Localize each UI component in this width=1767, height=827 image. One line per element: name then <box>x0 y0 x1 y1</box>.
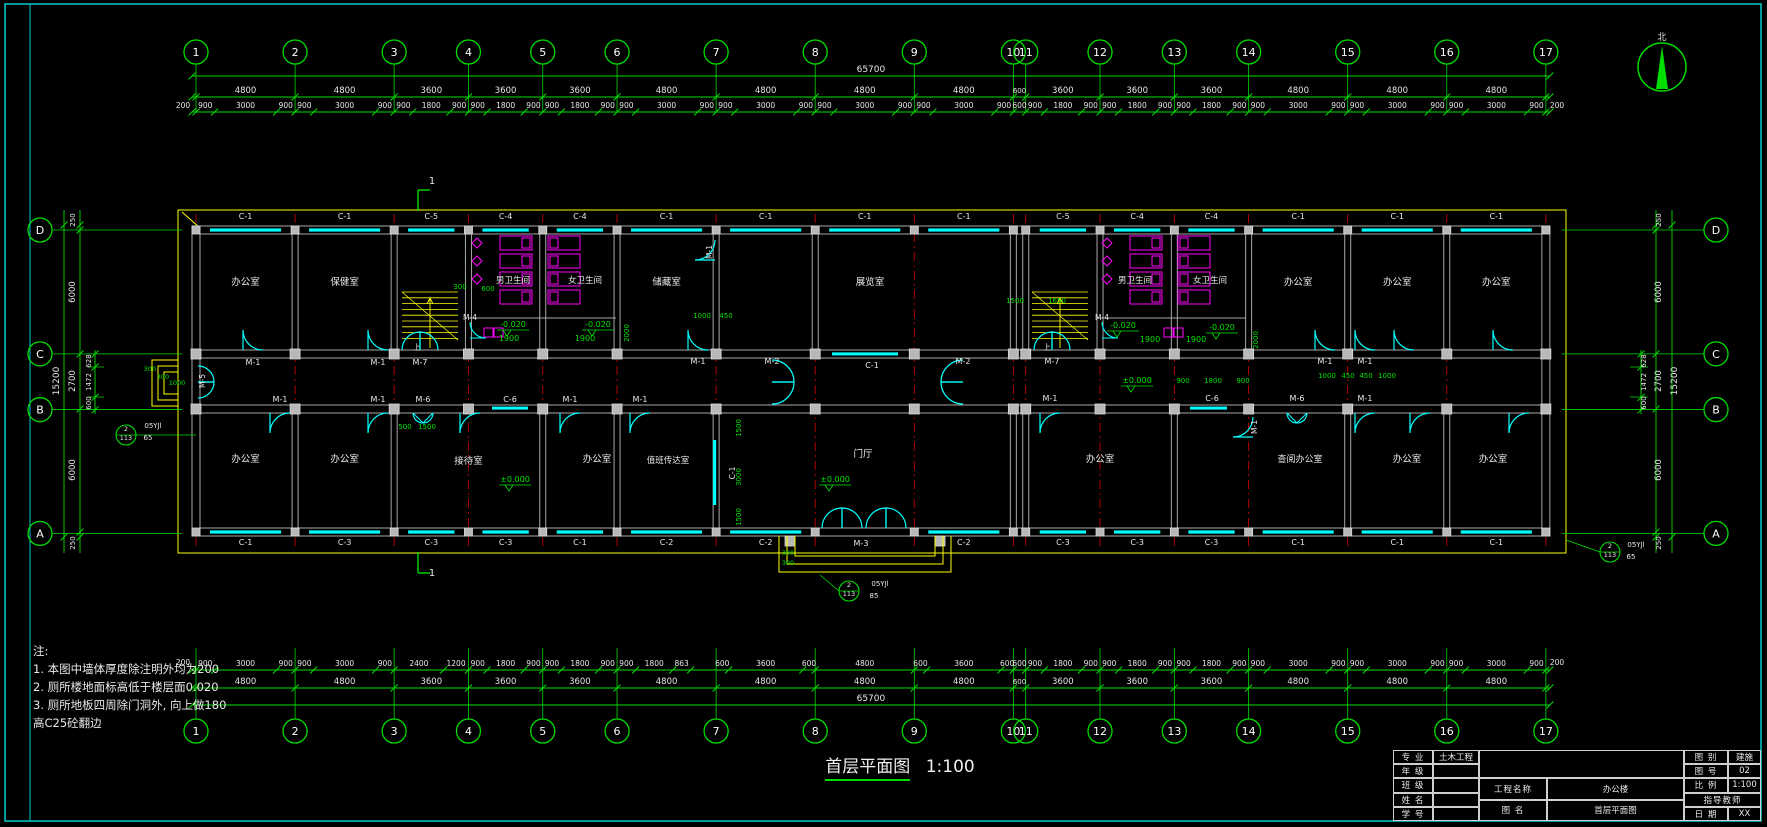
axis-bubble-label: C <box>1712 348 1720 361</box>
window-glazing <box>492 407 528 410</box>
dim-detail: 900 <box>526 101 541 110</box>
window-label: C-2 <box>759 538 773 547</box>
window-label: C-1 <box>239 212 253 221</box>
window-label: C-3 <box>1130 538 1144 547</box>
room-label: 男卫生间 <box>496 275 530 286</box>
partition-wall <box>1345 413 1351 528</box>
column <box>1021 404 1031 414</box>
axis-bubble-label: 8 <box>812 725 819 738</box>
opening-label: M-1 <box>633 395 648 404</box>
column <box>711 349 721 359</box>
partition-wall <box>1444 234 1450 350</box>
dim-detail: 1800 <box>1128 659 1147 668</box>
titleblock-label: 图 别 <box>1684 750 1728 764</box>
plan-outline <box>178 210 1566 553</box>
door-arc <box>1287 413 1297 423</box>
exterior-wall-east <box>1542 226 1550 536</box>
titleblock-value: 1:100 <box>1728 778 1761 792</box>
north-compass-needle <box>1656 46 1668 89</box>
opening-label: 65 <box>144 434 153 442</box>
axis-bubble-label: 14 <box>1242 46 1256 59</box>
dim-detail: 900 <box>526 659 541 668</box>
axis-bubble-label: 6 <box>614 725 621 738</box>
dim-detail: 3000 <box>236 101 255 110</box>
opening-label: 05YJl <box>871 580 888 588</box>
partition-wall <box>1023 234 1029 350</box>
column <box>192 226 200 234</box>
column <box>1170 528 1178 536</box>
dim-detail: 900 <box>1449 101 1464 110</box>
inner-dim: 450 <box>1341 372 1354 380</box>
column <box>538 349 548 359</box>
opening-label: 113 <box>1604 551 1616 559</box>
dim-detail: 900 <box>1529 659 1544 668</box>
dim-detail: 900 <box>718 101 733 110</box>
dim-total: 15200 <box>52 366 62 395</box>
axis-bubble-label: 17 <box>1539 46 1553 59</box>
dim-span: 4800 <box>1287 677 1309 687</box>
inner-dim: 450 <box>1359 372 1372 380</box>
window-label: C-1 <box>1390 212 1404 221</box>
dim-detail: 1800 <box>645 659 664 668</box>
opening-label: M-6 <box>1290 394 1305 403</box>
partition-wall <box>1345 234 1351 350</box>
column <box>464 226 472 234</box>
axis-bubble-label: 6 <box>614 46 621 59</box>
dim-detail: 3000 <box>954 101 973 110</box>
door-arc <box>1040 413 1060 433</box>
dim-detail: 600 <box>1012 101 1027 110</box>
column <box>909 404 919 414</box>
column <box>1443 226 1451 234</box>
dim-detail: 3000 <box>335 101 354 110</box>
window-label: C-4 <box>1205 212 1219 221</box>
door-arc <box>1394 330 1414 350</box>
dim-detail: 900 <box>378 659 393 668</box>
dim-end: 250 <box>1655 213 1663 226</box>
column <box>1009 226 1017 234</box>
column <box>1541 349 1551 359</box>
window-glazing <box>1263 228 1334 231</box>
partition-wall <box>391 234 397 350</box>
dim-span: 4800 <box>1287 86 1309 96</box>
dim-span: 4800 <box>953 86 975 96</box>
callout-leader <box>1566 540 1600 552</box>
opening-label: 上 <box>1043 343 1051 352</box>
dim-span: 6000 <box>68 281 78 303</box>
dim-detail: 900 <box>279 659 294 668</box>
room-label: 办公室 <box>231 453 260 465</box>
dim-detail: 900 <box>799 101 814 110</box>
dim-span: 3600 <box>569 677 591 687</box>
column <box>1008 349 1018 359</box>
dim-detail: 900 <box>1158 659 1173 668</box>
door-arc <box>243 330 263 350</box>
column <box>1021 349 1031 359</box>
titleblock-value <box>1433 793 1479 807</box>
column <box>1245 226 1253 234</box>
window-glazing <box>1362 228 1433 231</box>
door-arc <box>1509 413 1529 433</box>
titleblock-blank <box>1479 750 1684 778</box>
titleblock-label: 班 级 <box>1393 778 1433 792</box>
wc <box>1152 238 1160 248</box>
door-arc <box>1355 413 1375 433</box>
axis-bubble-label: 9 <box>911 46 918 59</box>
inner-dim: 2000 <box>623 324 631 342</box>
dim-detail: 900 <box>1232 659 1247 668</box>
window-glazing <box>1188 530 1234 533</box>
dim-detail: 3000 <box>1289 101 1308 110</box>
drawing-title: 首层平面图 1:100 <box>770 752 1030 777</box>
room-label: 查阅办公室 <box>1277 453 1322 465</box>
titleblock-value: XX <box>1728 807 1761 821</box>
column <box>712 528 720 536</box>
dim-detail: 1472 <box>85 373 93 391</box>
column <box>1343 404 1353 414</box>
dim-detail: 900 <box>545 101 560 110</box>
urinal <box>472 238 482 248</box>
dim-detail: 1800 <box>1202 101 1221 110</box>
opening-label: M-1 <box>371 358 386 367</box>
column <box>1095 349 1105 359</box>
level-symbol-triangle <box>1127 386 1135 392</box>
opening-label: M-4 <box>463 313 477 322</box>
room-label: 保健室 <box>330 276 359 288</box>
dim-detail: 900 <box>1102 101 1117 110</box>
dim-detail: 3000 <box>236 659 255 668</box>
opening-label: 上 <box>413 343 421 352</box>
window-label: C-2 <box>660 538 674 547</box>
inner-dim: ±0.000 <box>820 475 850 484</box>
opening-label: M-1 <box>371 395 386 404</box>
column <box>539 528 547 536</box>
partition-wall <box>1023 413 1029 528</box>
dim-detail: 3000 <box>756 101 775 110</box>
column <box>463 349 473 359</box>
inner-dim: 900 <box>1176 377 1189 385</box>
column <box>613 226 621 234</box>
window-glazing <box>631 228 702 231</box>
window-label: C-1 <box>1291 538 1305 547</box>
dim-detail: 900 <box>1176 659 1191 668</box>
room-label: 办公室 <box>1383 276 1412 288</box>
dim-detail: 3000 <box>1388 101 1407 110</box>
column <box>191 404 201 414</box>
window-glazing <box>928 228 999 231</box>
opening-label: M-1 <box>246 358 261 367</box>
inner-dim: 1500 <box>735 419 743 437</box>
window-label: C-3 <box>1205 538 1219 547</box>
drawing-title-text: 首层平面图 <box>825 757 910 781</box>
wc <box>1180 292 1188 302</box>
titleblock-label: 学 号 <box>1393 807 1433 821</box>
dim-detail: 600 <box>802 659 817 668</box>
dim-detail: 900 <box>1158 101 1173 110</box>
dim-span: 3600 <box>420 677 442 687</box>
titleblock-label: 比 例 <box>1684 778 1728 792</box>
dim-detail: 3000 <box>657 101 676 110</box>
dim-detail: 900 <box>1102 659 1117 668</box>
window-label: C-1 <box>660 212 674 221</box>
partition-wall <box>1010 234 1016 350</box>
dim-detail: 2400 <box>409 659 428 668</box>
inner-dim: 3000 <box>735 468 743 486</box>
column <box>1344 226 1352 234</box>
window-glazing <box>557 530 603 533</box>
dim-span: 3600 <box>1052 677 1074 687</box>
room-label: 办公室 <box>231 276 260 288</box>
column <box>910 226 918 234</box>
window-glazing <box>557 228 603 231</box>
axis-bubble-label: D <box>36 224 44 237</box>
column <box>1542 528 1550 536</box>
window-glazing <box>730 530 801 533</box>
titleblock-label: 图 号 <box>1684 764 1728 778</box>
dim-detail: 1800 <box>1128 101 1147 110</box>
dim-span: 4800 <box>235 86 257 96</box>
opening-label: C-6 <box>1205 394 1219 403</box>
dim-span: 4800 <box>854 677 876 687</box>
inner-dim: -0.020 <box>585 320 611 329</box>
dim-detail: 3600 <box>756 659 775 668</box>
window-label: C-1 <box>957 212 971 221</box>
axis-bubble-label: 5 <box>539 46 546 59</box>
partition-wall <box>614 413 620 528</box>
door-arc <box>688 330 708 350</box>
opening-label: M-2 <box>956 357 971 366</box>
dim-detail: 3000 <box>1388 659 1407 668</box>
dim-detail: 900 <box>916 101 931 110</box>
dim-detail: 900 <box>898 101 913 110</box>
window-glazing <box>713 440 716 505</box>
dim-detail: 3000 <box>335 659 354 668</box>
window-label: C-4 <box>499 212 513 221</box>
opening-label: M-7 <box>413 358 428 367</box>
dim-detail: 900 <box>297 101 312 110</box>
window-glazing <box>1190 407 1227 410</box>
window-label: C-1 <box>573 538 587 547</box>
floor-plan-canvas: 北C-1C-1C-5C-4C-4C-1C-1C-1C-1C-5C-4C-4C-1… <box>0 0 1767 827</box>
wc <box>522 238 530 248</box>
axis-bubble-label: 3 <box>391 46 398 59</box>
opening-label: M-1 <box>1358 357 1373 366</box>
column <box>1344 528 1352 536</box>
dim-end: 250 <box>1655 536 1663 549</box>
column <box>1542 226 1550 234</box>
window-label: C-3 <box>499 538 513 547</box>
dim-end: 200 <box>176 101 191 110</box>
room-label: 办公室 <box>1482 276 1511 288</box>
column <box>390 226 398 234</box>
room-label: 女卫生间 <box>1193 275 1227 286</box>
door-arc <box>423 413 433 423</box>
general-notes: 注: 1. 本图中墙体厚度除注明外均为200 2. 厕所楼地面标高低于楼层面0.… <box>33 642 226 732</box>
inner-dim: 1000 <box>693 312 711 320</box>
dim-detail: 1800 <box>496 101 515 110</box>
column <box>1245 528 1253 536</box>
window-glazing <box>1461 530 1532 533</box>
wc <box>550 238 558 248</box>
window-glazing <box>1040 530 1086 533</box>
dim-span: 3600 <box>1201 86 1223 96</box>
axis-bubble-label: 15 <box>1341 46 1355 59</box>
dim-detail: 600 <box>1012 659 1027 668</box>
opening-label: M-1 <box>1250 420 1259 434</box>
column <box>539 226 547 234</box>
dim-detail: 900 <box>471 659 486 668</box>
dim-detail: 4800 <box>855 659 874 668</box>
dim-detail: 600 <box>913 659 928 668</box>
dim-span: 4800 <box>953 677 975 687</box>
inner-dim: 1000 <box>1318 372 1336 380</box>
dim-end: 200 <box>1550 101 1565 110</box>
door-arc <box>1315 330 1335 350</box>
room-label: 女卫生间 <box>568 275 602 286</box>
axis-bubble-label: 2 <box>292 46 299 59</box>
dim-detail: 900 <box>1028 659 1043 668</box>
titleblock-label: 姓 名 <box>1393 793 1433 807</box>
window-label: C-3 <box>338 538 352 547</box>
dim-span: 3600 <box>569 86 591 96</box>
dim-detail: 900 <box>619 101 634 110</box>
window-label: C-1 <box>1291 212 1305 221</box>
inner-dim: 450 <box>719 312 732 320</box>
door-arc <box>420 332 438 350</box>
column <box>290 349 300 359</box>
axis-bubble-label: 12 <box>1093 725 1107 738</box>
window-label: C-1 <box>1490 212 1504 221</box>
dim-detail: 1800 <box>422 101 441 110</box>
opening-label: M-7 <box>1045 357 1060 366</box>
dim-detail: 900 <box>619 659 634 668</box>
partition-wall <box>1097 234 1103 350</box>
dim-span: 6000 <box>1654 459 1664 481</box>
axis-bubble-label: 7 <box>713 725 720 738</box>
inner-dim: 1000 <box>169 379 186 387</box>
column <box>191 349 201 359</box>
inner-dim: 900 <box>1236 377 1249 385</box>
axis-bubble-label: A <box>36 527 44 540</box>
titleblock-label: 日 期 <box>1684 807 1728 821</box>
room-label: 办公室 <box>583 453 612 465</box>
dim-detail: 900 <box>1176 101 1191 110</box>
window-glazing <box>482 530 528 533</box>
inner-dim: 1900 <box>1186 335 1206 344</box>
column <box>291 226 299 234</box>
axis-bubble-label: 4 <box>465 725 472 738</box>
dim-detail: 900 <box>1331 101 1346 110</box>
dim-span: 4800 <box>334 677 356 687</box>
dim-span: 600 <box>1013 87 1026 95</box>
sink <box>484 328 493 337</box>
window-label: C-3 <box>425 538 439 547</box>
dim-detail: 900 <box>1251 101 1266 110</box>
opening-label: 2 <box>124 425 128 433</box>
note-line: 1. 本图中墙体厚度除注明外均为200 <box>33 660 226 678</box>
dim-end: 250 <box>69 536 77 549</box>
dim-detail: 628 <box>85 354 93 367</box>
level-symbol-triangle <box>1212 333 1220 339</box>
titleblock-value: 办公楼 <box>1547 778 1684 799</box>
dim-detail: 900 <box>1331 659 1346 668</box>
dim-detail: 1800 <box>496 659 515 668</box>
titleblock-value <box>1433 764 1479 778</box>
inner-dim: -0.020 <box>1209 323 1235 332</box>
dim-detail: 900 <box>601 101 616 110</box>
opening-label: 113 <box>843 590 855 598</box>
dim-span: 4800 <box>656 677 678 687</box>
inner-dim: -0.020 <box>500 320 526 329</box>
dim-span: 4800 <box>755 86 777 96</box>
opening-label: C-6 <box>503 395 517 404</box>
axis-bubble-label: 13 <box>1167 46 1181 59</box>
window-label: C-1 <box>858 212 872 221</box>
axis-bubble-label: 14 <box>1242 725 1256 738</box>
dim-span: 3600 <box>1052 86 1074 96</box>
door-arc <box>1052 332 1070 350</box>
column <box>1022 226 1030 234</box>
dim-detail: 1800 <box>1053 101 1072 110</box>
partition-wall <box>1010 413 1016 528</box>
dim-detail: 900 <box>471 101 486 110</box>
door-arc <box>460 413 480 433</box>
urinal <box>472 256 482 266</box>
window-glazing <box>309 228 380 231</box>
dim-span: 6000 <box>1654 281 1664 303</box>
axis-bubble-label: 15 <box>1341 725 1355 738</box>
window-glazing <box>309 530 380 533</box>
inner-dim: 1900 <box>1140 335 1160 344</box>
dim-detail: 900 <box>378 101 393 110</box>
column <box>810 404 820 414</box>
dim-end: 250 <box>69 213 77 226</box>
door-arc <box>368 413 388 433</box>
dim-detail: 900 <box>997 101 1012 110</box>
opening-label: M-1 <box>1043 394 1058 403</box>
window-glazing <box>832 352 898 355</box>
window-glazing <box>1461 228 1532 231</box>
door-arc <box>772 382 794 404</box>
column <box>1169 349 1179 359</box>
dim-detail: 1200 <box>447 659 466 668</box>
column <box>192 528 200 536</box>
titleblock-value: 首层平面图 <box>1547 800 1684 821</box>
opening-label: 05YJl <box>144 422 161 430</box>
dim-total: 65700 <box>857 65 886 75</box>
note-line: 2. 厕所楼地面标高低于楼层面0.020 <box>33 678 226 696</box>
titleblock-value <box>1433 807 1479 821</box>
dim-detail: 1800 <box>570 101 589 110</box>
door-arc <box>413 413 423 423</box>
column <box>390 528 398 536</box>
window-label: C-1 <box>338 212 352 221</box>
window-label: C-5 <box>425 212 439 221</box>
dim-span: 2700 <box>68 370 78 392</box>
wc <box>1180 274 1188 284</box>
window-label: C-1 <box>759 212 773 221</box>
column <box>1095 404 1105 414</box>
dim-span: 4800 <box>656 86 678 96</box>
opening-label: 1 <box>429 176 435 187</box>
axis-bubble-label: 16 <box>1440 725 1454 738</box>
dim-detail: 900 <box>601 659 616 668</box>
dim-detail: 900 <box>545 659 560 668</box>
inner-dim: 300 <box>144 365 156 373</box>
column <box>1442 404 1452 414</box>
dim-span: 4800 <box>1386 677 1408 687</box>
titleblock-label: 工程名称 <box>1479 778 1547 799</box>
